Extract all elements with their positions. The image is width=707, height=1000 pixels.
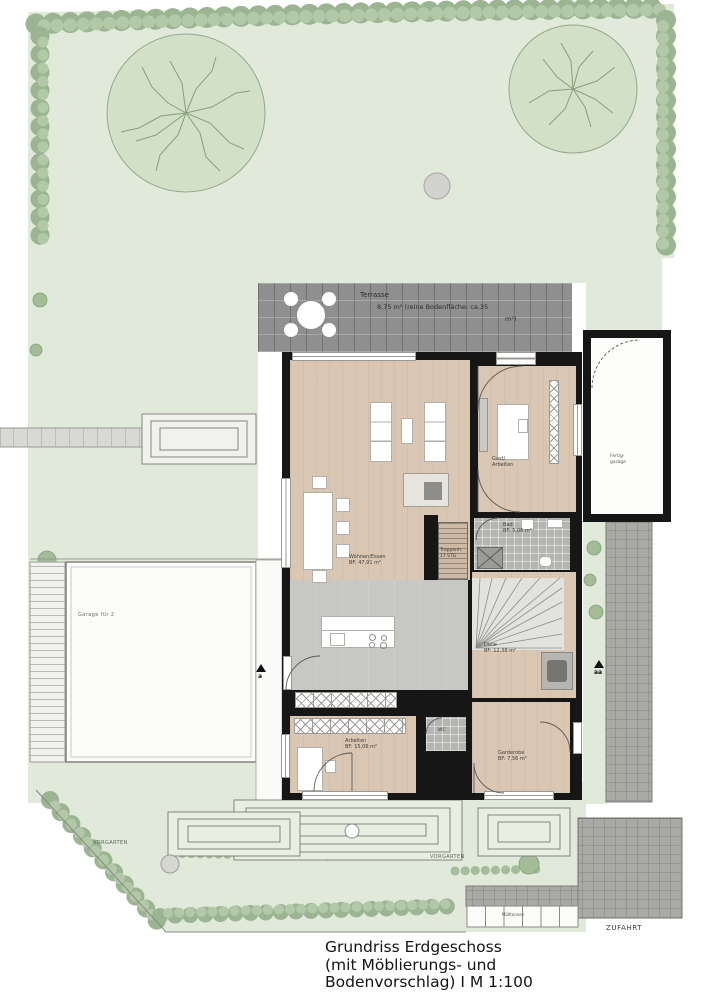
cooktop-burner: [369, 634, 376, 641]
room-label-stairs-name: Treppenh.: [440, 548, 462, 554]
front-steps-center: [234, 800, 462, 860]
garage-left-pad: [66, 562, 256, 762]
driveway-bottom-strip: [466, 886, 578, 906]
caption-line1: Grundriss Erdgeschoss: [325, 939, 533, 957]
hall-sideboard-inset: [547, 660, 567, 682]
tree-large-left: [107, 34, 265, 192]
caption-line3: Bodenvorschlag) I M 1:100: [325, 974, 533, 992]
room-label-guest: Gast/ Arbeiten: [492, 456, 513, 468]
tree-large-right: [509, 25, 637, 153]
room-label-stairs: Treppenh. 17 STG: [440, 548, 462, 559]
dining-chair: [336, 544, 350, 558]
bins-label: Mülltonnen: [502, 912, 524, 917]
section-triangle-a: [256, 664, 266, 672]
terrace-area-line2: m²): [505, 315, 516, 323]
stair-wall: [424, 515, 438, 580]
room-label-hall: Diele BF: 12,38 m²: [484, 642, 516, 654]
plan-caption: Grundriss Erdgeschoss (mit Möblierungs- …: [325, 939, 533, 992]
window-guest-right: [573, 404, 582, 456]
plot-boundary: [36, 790, 466, 932]
room-label-wardrobe: Garderobe BF: 7,56 m²: [498, 750, 527, 762]
dining-chair: [336, 498, 350, 512]
office-desk: [297, 747, 323, 791]
window-terrace-door: [292, 352, 416, 361]
room-label-wardrobe-area: BF: 7,56 m²: [498, 756, 527, 762]
front-steps-left: [168, 812, 300, 856]
room-label-hall-area: BF: 12,38 m²: [484, 648, 516, 654]
stairs-fan-flight: [472, 578, 564, 650]
terrace-chair: [322, 292, 336, 306]
stepping-stone-top: [424, 173, 450, 199]
bath-sink: [547, 519, 563, 528]
door-kitchen-side: [283, 656, 292, 690]
terrace-table: [296, 300, 326, 330]
garage-right-label-line1: Fertig-: [610, 454, 626, 460]
front-steps-right: [478, 808, 570, 856]
door-entrance-right: [573, 722, 582, 754]
kitchen-sink: [330, 633, 345, 646]
window-office-bottom: [302, 791, 388, 800]
garage-left-inner-line: [71, 567, 251, 757]
section-label-aa: aa: [594, 669, 602, 676]
fireplace-stove: [424, 482, 442, 500]
floor-plan-canvas: Terrasse 8,75 m² (reine Bodenfläche: ca.…: [0, 0, 707, 1000]
terrace-label: Terrasse: [360, 291, 389, 299]
tv-sideboard: [479, 398, 488, 452]
room-label-bath-area: BF: 5,06 m²: [503, 528, 532, 534]
cooktop-burner: [381, 635, 387, 641]
terrace-chair: [322, 323, 336, 337]
section-triangle-aa: [594, 660, 604, 668]
window-guest-top: [496, 352, 536, 365]
cooktop-burner: [369, 642, 375, 648]
cooktop-burner: [380, 642, 387, 649]
front-yard-label-mid: VORGARTEN: [430, 854, 465, 860]
retaining-wall-band: [30, 562, 65, 762]
office-chair: [325, 760, 336, 773]
dining-table: [303, 492, 333, 570]
office-wardrobe-row: [294, 718, 406, 734]
steps-light: [345, 824, 359, 838]
driveway-side-strip: [606, 522, 652, 802]
garage-left-label: Garage für 2: [78, 612, 114, 618]
room-label-living-area: BF: 47,91 m²: [349, 560, 386, 566]
garage-right-label: Fertig- garage: [610, 454, 626, 465]
left-steps: [142, 414, 256, 464]
kitchen-island-divider: [321, 630, 395, 631]
room-wardrobe: [472, 702, 570, 793]
garage-right-label-line2: garage: [610, 460, 626, 466]
room-label-bath: Bad BF: 5,06 m²: [503, 522, 532, 534]
window-bay-left: [281, 478, 291, 568]
left-path: [0, 428, 142, 447]
garage-right-interior: [591, 338, 663, 514]
guest-pillow: [518, 419, 528, 433]
terrace-chair: [284, 292, 298, 306]
room-label-guest-name2: Arbeiten: [492, 462, 513, 468]
terrace-area-line1: 8,75 m² (reine Bodenfläche: ca.35: [377, 303, 488, 311]
room-label-wc: WC: [438, 728, 446, 734]
caption-line2: (mit Möblierungs- und: [325, 957, 533, 975]
section-label-a: a: [258, 673, 262, 680]
dining-chair: [336, 521, 350, 535]
driveway-label: ZUFAHRT: [606, 924, 642, 932]
dining-chair: [312, 570, 327, 583]
stepping-stone-bottom: [161, 855, 179, 873]
sofa: [370, 402, 392, 462]
room-label-office-area: BF: 15,06 m²: [345, 744, 377, 750]
toilet: [539, 556, 552, 567]
driveway-pad: [578, 818, 682, 918]
shower: [477, 547, 503, 569]
side-path: [256, 560, 282, 802]
guest-wardrobe: [549, 380, 559, 464]
room-wc: [426, 717, 466, 751]
room-label-living: Wohnen/Essen BF: 47,91 m²: [349, 554, 386, 566]
window-office-left: [281, 734, 290, 778]
front-yard-label-left: VORGARTEN: [93, 840, 128, 846]
coffee-table: [401, 418, 413, 444]
kitchen-cabinet-row: [295, 692, 397, 708]
sofa: [424, 402, 446, 462]
room-label-office: Arbeiten BF: 15,06 m²: [345, 738, 377, 750]
terrace-chair: [284, 323, 298, 337]
dining-chair: [312, 476, 327, 489]
room-label-stairs-detail: 17 STG: [440, 554, 462, 560]
window-wardrobe-bottom: [484, 791, 554, 800]
